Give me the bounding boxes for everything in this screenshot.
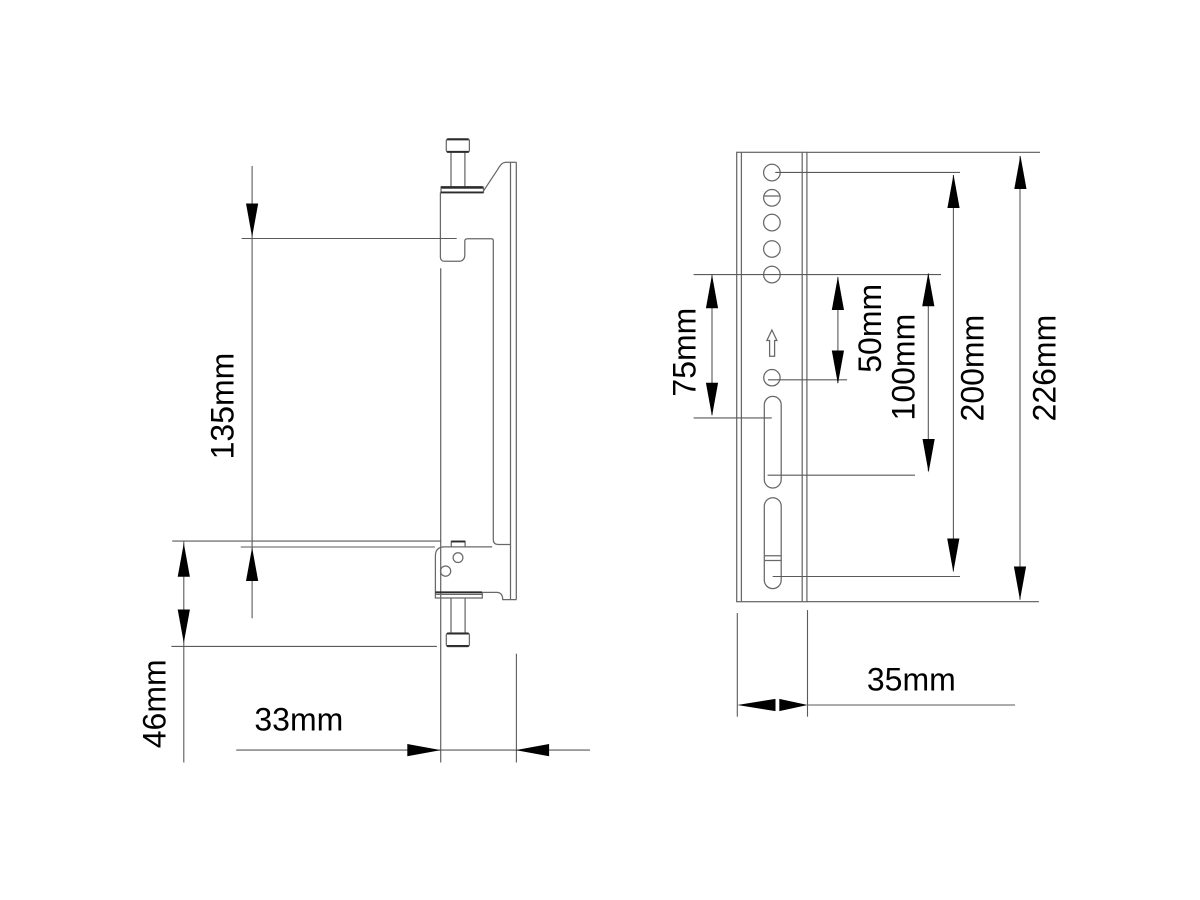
svg-text:100mm: 100mm xyxy=(886,314,922,421)
svg-text:50mm: 50mm xyxy=(852,284,888,373)
svg-text:33mm: 33mm xyxy=(254,702,343,738)
svg-text:46mm: 46mm xyxy=(137,659,173,748)
svg-text:35mm: 35mm xyxy=(867,662,956,698)
svg-text:200mm: 200mm xyxy=(955,315,991,422)
svg-text:135mm: 135mm xyxy=(204,353,240,460)
svg-text:75mm: 75mm xyxy=(666,308,702,397)
svg-text:226mm: 226mm xyxy=(1027,315,1063,422)
